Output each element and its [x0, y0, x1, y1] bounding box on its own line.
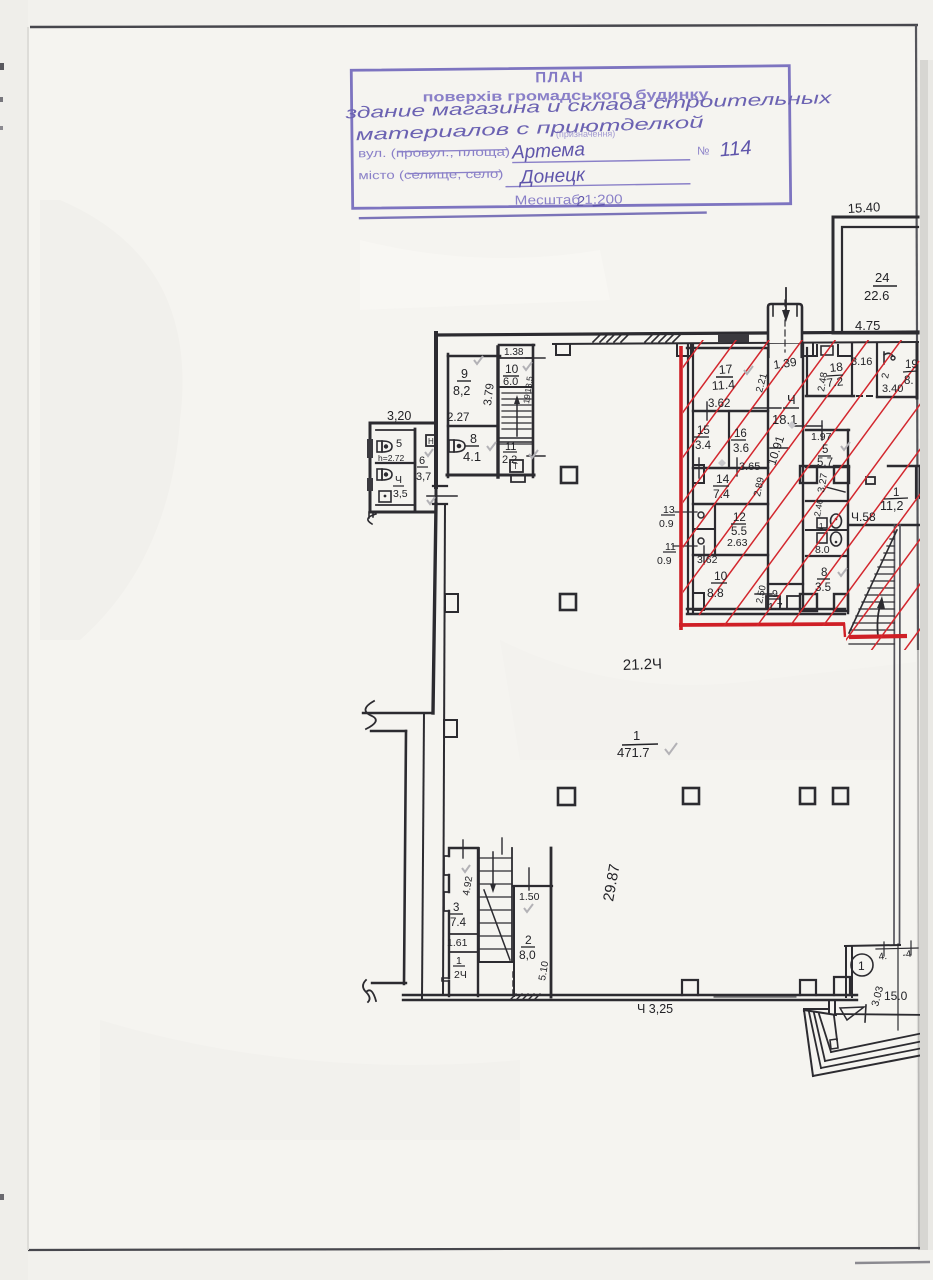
- svg-text:2: 2: [525, 933, 532, 947]
- svg-text:1: 1: [633, 728, 640, 743]
- svg-text:1: 1: [893, 487, 899, 499]
- svg-text:15.0: 15.0: [884, 989, 908, 1003]
- svg-text:15: 15: [697, 425, 710, 437]
- svg-text:11: 11: [665, 541, 676, 553]
- svg-text:4.75: 4.75: [855, 318, 880, 333]
- svg-text:3,20: 3,20: [387, 409, 411, 423]
- svg-text:7.4: 7.4: [713, 487, 730, 501]
- svg-text:2: 2: [576, 193, 585, 209]
- svg-text:Ч.58: Ч.58: [851, 510, 876, 524]
- svg-text:1: 1: [456, 955, 462, 967]
- svg-text:2.63: 2.63: [727, 537, 748, 549]
- svg-text:22.6: 22.6: [864, 288, 889, 303]
- svg-text:Н: Н: [428, 437, 434, 446]
- svg-text:h=2.72: h=2.72: [378, 453, 405, 463]
- svg-text:1: 1: [819, 522, 824, 531]
- svg-text:10: 10: [505, 362, 519, 376]
- svg-text:3,7: 3,7: [416, 471, 431, 483]
- svg-text:4.: 4.: [878, 951, 888, 963]
- svg-text:3.16: 3.16: [851, 356, 872, 368]
- svg-text:8.: 8.: [904, 375, 914, 387]
- svg-text:4.1: 4.1: [463, 449, 481, 464]
- svg-text:114: 114: [719, 137, 753, 161]
- svg-text:9: 9: [461, 367, 468, 381]
- svg-text:3.40: 3.40: [882, 383, 903, 395]
- svg-text:24: 24: [875, 270, 889, 285]
- svg-text:Ч: Ч: [395, 474, 402, 486]
- svg-text:10: 10: [714, 569, 728, 583]
- svg-text:№: №: [697, 146, 709, 158]
- svg-text:3.5: 3.5: [815, 582, 831, 594]
- svg-text:8.8: 8.8: [707, 586, 724, 600]
- svg-text:1.97: 1.97: [811, 431, 832, 443]
- svg-text:Ч: Ч: [787, 392, 796, 407]
- svg-text:19: 19: [905, 359, 918, 371]
- svg-text:11: 11: [505, 441, 516, 453]
- svg-text:0.9: 0.9: [657, 555, 672, 567]
- svg-text:3.62: 3.62: [708, 398, 730, 410]
- svg-text:17: 17: [718, 362, 733, 377]
- svg-text:15.40: 15.40: [847, 199, 880, 216]
- svg-text:ПЛАН: ПЛАН: [535, 69, 584, 87]
- svg-text:8: 8: [470, 432, 477, 446]
- svg-text:2Ч: 2Ч: [454, 969, 467, 981]
- svg-text:8,0: 8,0: [519, 948, 536, 962]
- svg-text:вул. (провул., площа): вул. (провул., площа): [358, 147, 510, 161]
- svg-text:5: 5: [822, 444, 828, 456]
- svg-text:7.4: 7.4: [450, 917, 467, 929]
- svg-text:1.61: 1.61: [447, 937, 468, 949]
- svg-text:16: 16: [734, 428, 747, 440]
- svg-text:0.9: 0.9: [659, 518, 674, 530]
- svg-text:9: 9: [772, 588, 778, 600]
- svg-text:Артема: Артема: [510, 139, 585, 163]
- svg-text:14: 14: [716, 472, 730, 486]
- svg-text:1: 1: [858, 959, 865, 973]
- svg-text:13: 13: [663, 504, 675, 516]
- svg-text:1.38: 1.38: [504, 347, 524, 358]
- svg-text:471.7: 471.7: [617, 745, 650, 760]
- svg-text:11,2: 11,2: [880, 499, 903, 513]
- svg-text:5.7: 5.7: [817, 457, 833, 469]
- svg-text:12: 12: [733, 512, 746, 524]
- svg-text:3.65: 3.65: [739, 461, 760, 473]
- svg-text:місто (селище, село): місто (селище, село): [358, 169, 503, 183]
- svg-text:8: 8: [821, 567, 827, 579]
- svg-text:6: 6: [419, 455, 425, 467]
- svg-text:Ч 3,25: Ч 3,25: [637, 1002, 673, 1016]
- svg-text:5: 5: [396, 438, 402, 450]
- svg-text:3: 3: [453, 902, 459, 914]
- svg-text:Донецк: Донецк: [518, 165, 587, 189]
- svg-text:3.6: 3.6: [733, 443, 749, 455]
- svg-text:2.27: 2.27: [447, 412, 469, 424]
- svg-text:3.4: 3.4: [695, 440, 712, 452]
- svg-text:6.0: 6.0: [503, 376, 518, 388]
- svg-text:18: 18: [829, 360, 844, 375]
- svg-text:1.7: 1.7: [768, 601, 783, 613]
- svg-text:3.62: 3.62: [697, 554, 718, 566]
- svg-text:8.0: 8.0: [815, 544, 830, 556]
- svg-text:11.4: 11.4: [711, 377, 735, 393]
- svg-text:21.2Ч: 21.2Ч: [623, 656, 663, 674]
- svg-text:1.50: 1.50: [519, 891, 540, 903]
- svg-text:Месштаб 1:200: Месштаб 1:200: [515, 191, 623, 207]
- svg-text:8,2: 8,2: [453, 384, 470, 398]
- svg-text:Т: Т: [513, 462, 518, 471]
- svg-text:3,5: 3,5: [393, 488, 408, 500]
